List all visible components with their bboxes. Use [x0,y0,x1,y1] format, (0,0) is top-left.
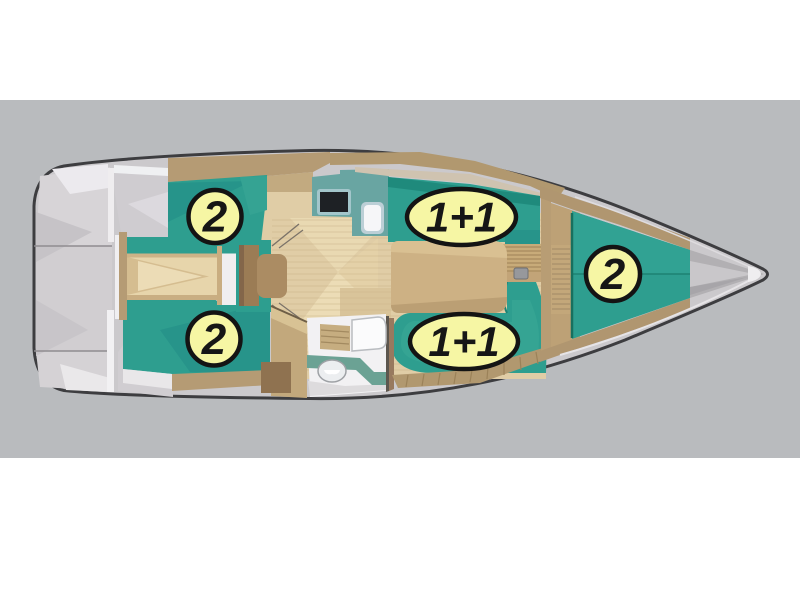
svg-text:2: 2 [600,250,626,299]
svg-text:2: 2 [202,193,228,242]
svg-text:1+1: 1+1 [428,318,499,365]
svg-text:1+1: 1+1 [426,194,497,241]
svg-text:2: 2 [201,315,227,364]
